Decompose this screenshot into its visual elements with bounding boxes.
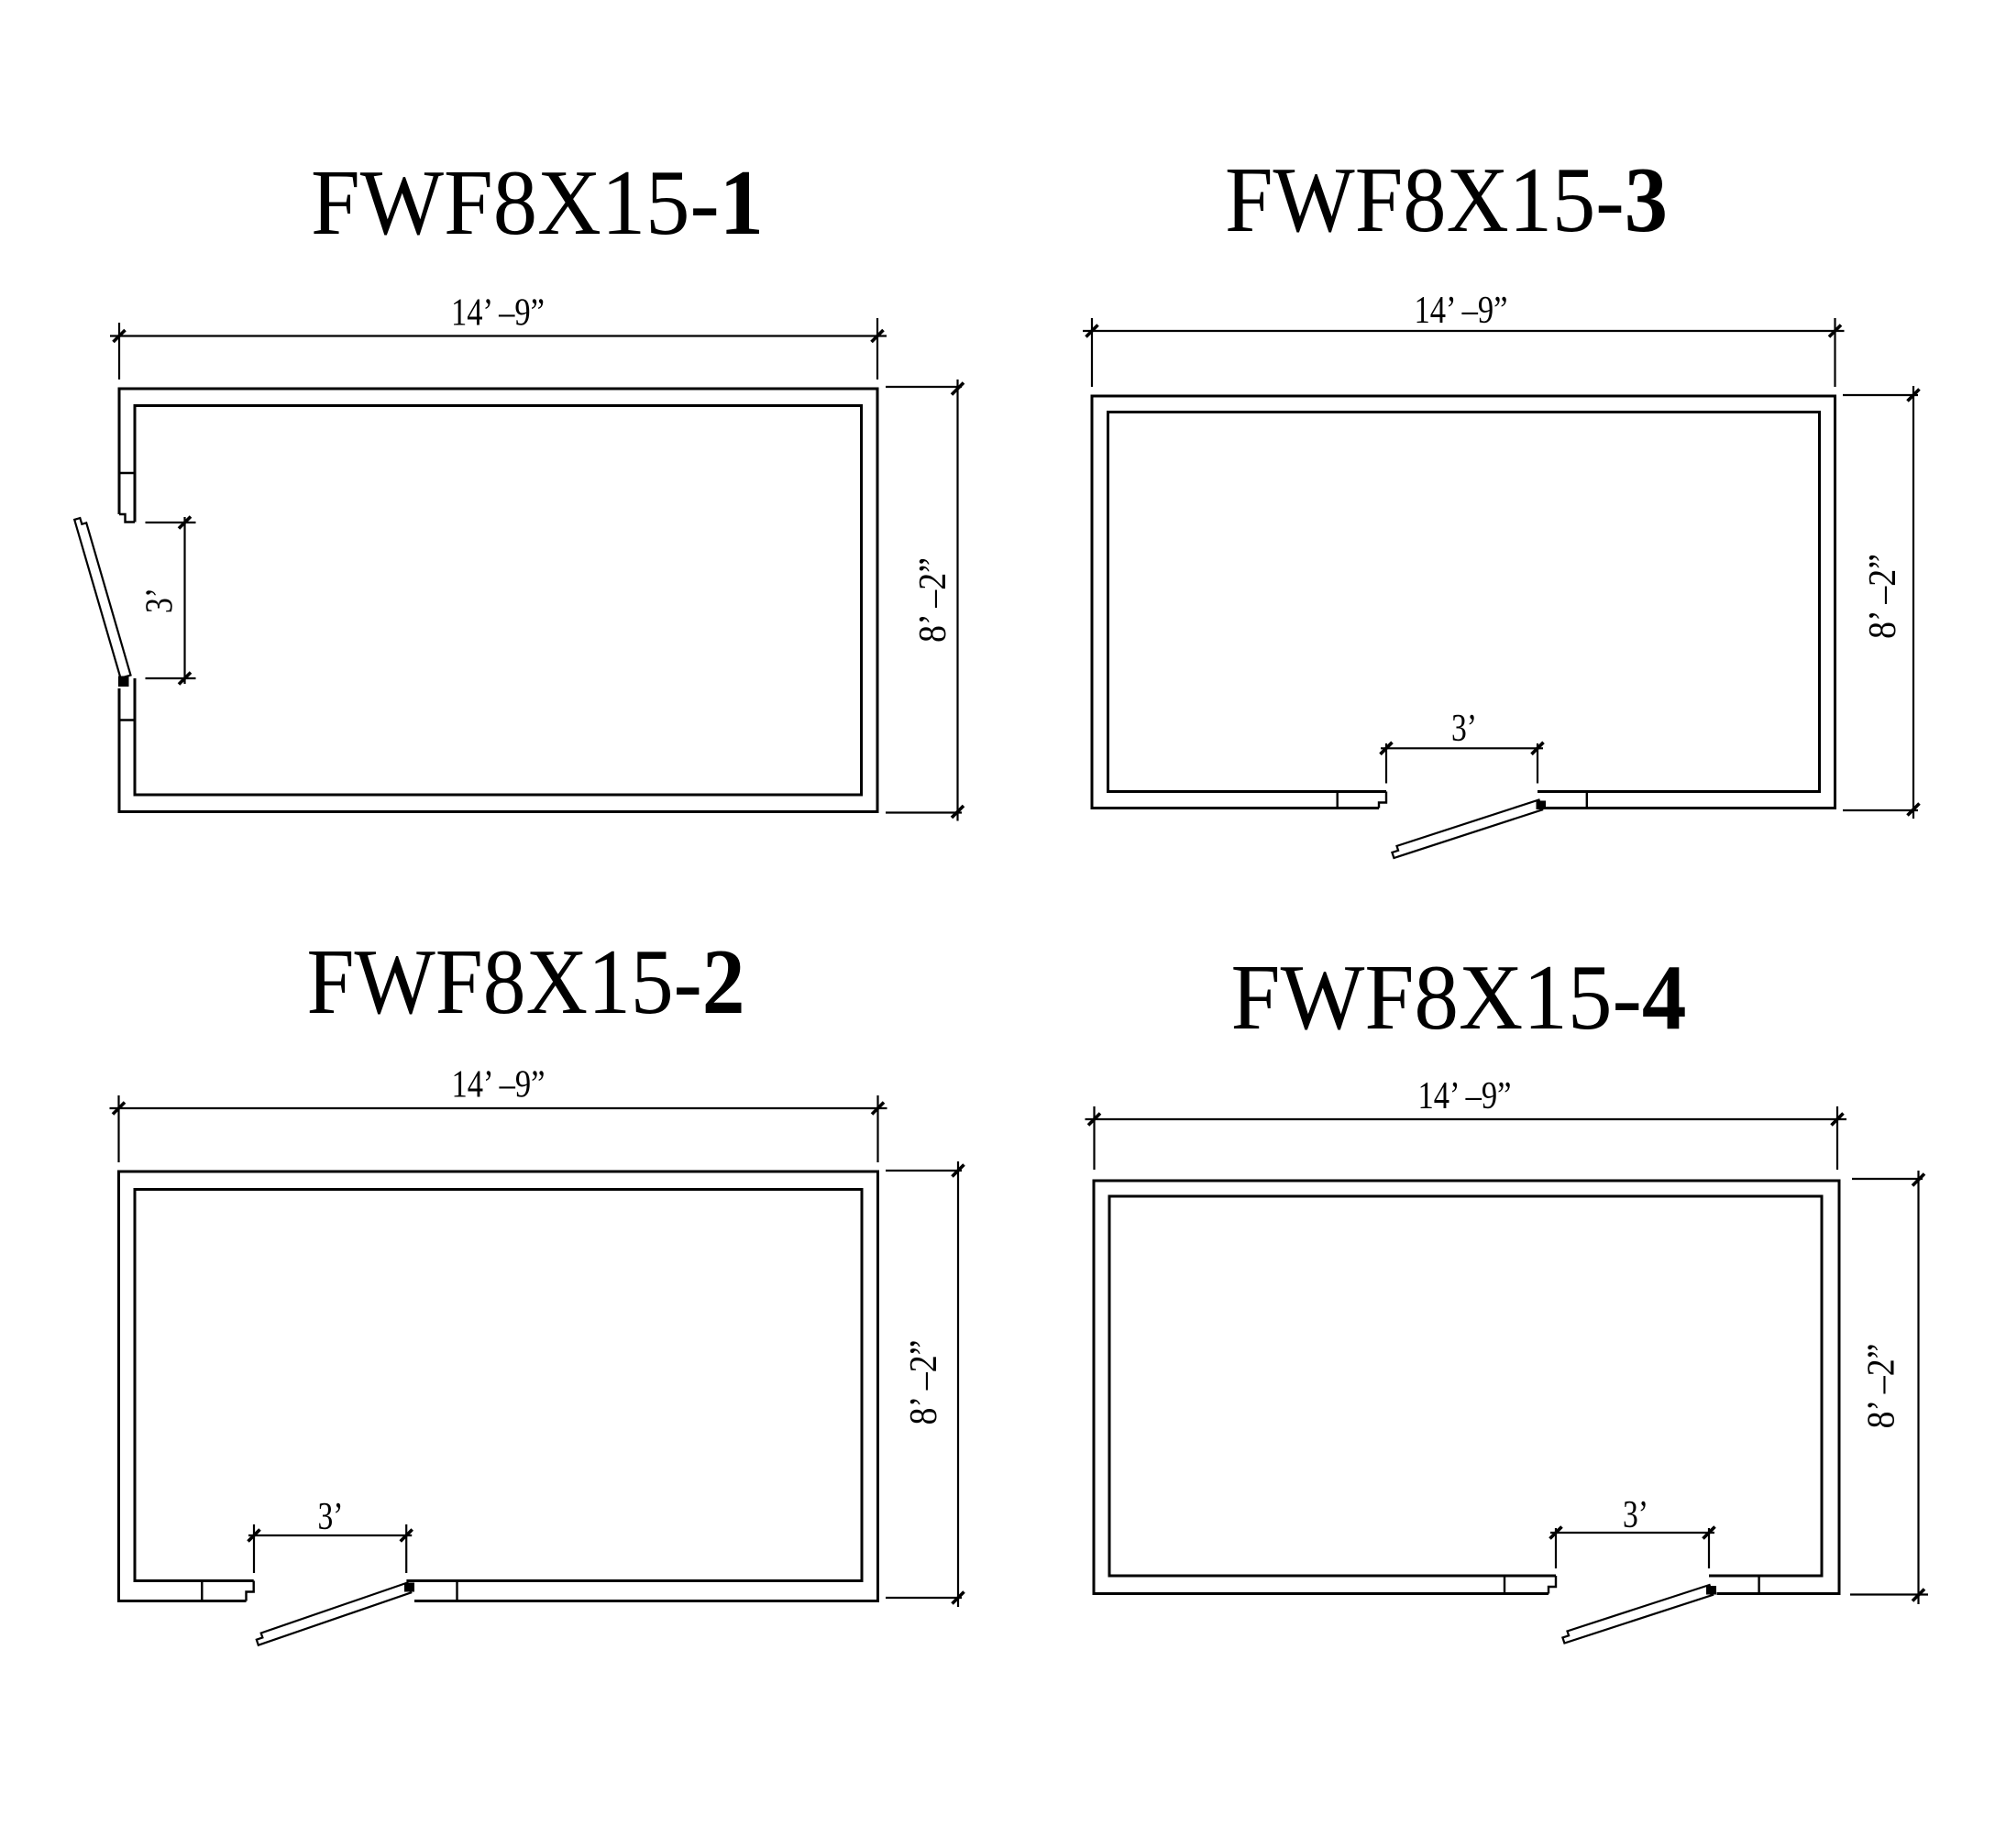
- svg-text:14’ –9”: 14’ –9”: [1415, 290, 1508, 332]
- svg-text:8’ –2”: 8’ –2”: [1862, 554, 1904, 639]
- svg-text:14’ –9”: 14’ –9”: [451, 292, 545, 335]
- svg-text:8’ –2”: 8’ –2”: [1861, 1344, 1903, 1429]
- svg-text:FWF8X15-3: FWF8X15-3: [1225, 148, 1668, 252]
- svg-text:FWF8X15-2: FWF8X15-2: [307, 930, 745, 1034]
- svg-text:3’: 3’: [1451, 708, 1477, 750]
- svg-text:FWF8X15-4: FWF8X15-4: [1231, 946, 1687, 1050]
- svg-text:3’: 3’: [318, 1496, 344, 1538]
- svg-text:14’ –9”: 14’ –9”: [1418, 1075, 1512, 1117]
- svg-text:8’ –2”: 8’ –2”: [903, 1340, 945, 1425]
- svg-text:3’: 3’: [1623, 1494, 1648, 1536]
- svg-text:3’: 3’: [139, 588, 182, 613]
- svg-text:14’ –9”: 14’ –9”: [452, 1064, 546, 1106]
- svg-text:8’ –2”: 8’ –2”: [912, 557, 954, 643]
- svg-text:FWF8X15-1: FWF8X15-1: [311, 151, 764, 255]
